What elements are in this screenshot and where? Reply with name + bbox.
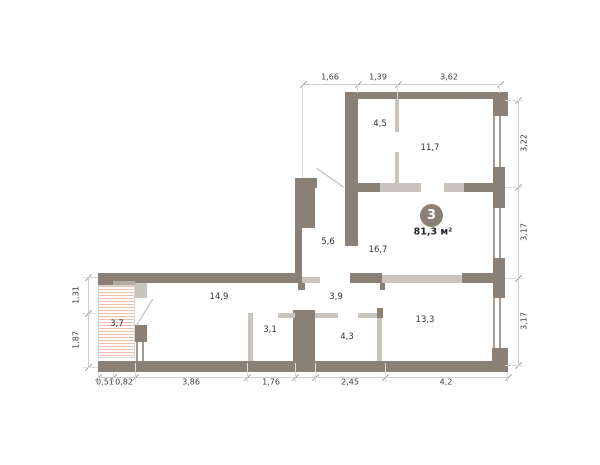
room-label-4-3: 4,3 <box>340 332 354 342</box>
wall-segment <box>293 310 315 361</box>
wall-segment <box>345 188 358 246</box>
extension-line <box>499 84 500 93</box>
door-swing-balcony <box>136 299 153 326</box>
window <box>493 298 501 348</box>
extension-line <box>295 363 296 382</box>
room-label-14-9: 14,9 <box>210 292 229 302</box>
wall-segment <box>295 188 315 228</box>
wall-segment <box>377 308 383 318</box>
partition-segment <box>358 313 377 318</box>
wall-segment <box>345 92 358 188</box>
dim-label-right-3: 3,17 <box>520 312 529 330</box>
extension-line <box>83 367 98 368</box>
extension-line <box>385 363 386 382</box>
wall-segment <box>133 325 147 342</box>
room-label-5-6: 5,6 <box>321 237 335 247</box>
partition-segment <box>248 313 253 361</box>
partition-segment <box>380 183 421 192</box>
room-label-16-7: 16,7 <box>369 245 388 255</box>
dim-label-bottom-4: 1,76 <box>262 378 280 387</box>
wall-segment <box>493 167 505 208</box>
window <box>493 116 501 167</box>
extension-line <box>507 372 508 382</box>
dim-label-bottom-2: 0,82 <box>115 378 133 387</box>
extension-line <box>83 313 96 314</box>
room-label-11-7: 11,7 <box>421 143 440 153</box>
wall-segment <box>350 273 382 283</box>
dim-label-top-1: 1,66 <box>321 73 339 82</box>
extension-line <box>247 363 248 382</box>
extension-line <box>315 363 316 382</box>
extension-line <box>135 363 136 382</box>
partition-segment <box>377 318 382 361</box>
floor-plan: 3 81,3 м² 4,5 11,7 5,6 16,7 14,9 3,7 3,1… <box>0 0 600 465</box>
extension-line <box>505 100 523 101</box>
window <box>136 342 144 361</box>
dim-label-left-1: 1,31 <box>72 286 81 304</box>
extension-line <box>113 372 114 382</box>
extension-line <box>505 278 523 279</box>
wall-segment <box>348 92 503 99</box>
partition-segment <box>278 313 295 318</box>
room-label-3-9: 3,9 <box>329 292 343 302</box>
room-label-13-3: 13,3 <box>416 315 435 325</box>
wall-segment <box>98 361 508 372</box>
partition-segment <box>395 99 399 132</box>
dim-line-top <box>303 84 500 85</box>
partition-segment <box>395 152 399 183</box>
partition-segment <box>444 183 464 192</box>
apartment-number-badge: 3 <box>420 204 443 227</box>
wall-segment <box>493 258 505 298</box>
apartment-area-label: 81,3 м² <box>414 227 453 238</box>
wall-segment <box>357 183 380 192</box>
dim-label-bottom-6: 4,2 <box>440 378 453 387</box>
extension-line <box>302 84 303 178</box>
extension-line <box>397 84 398 100</box>
extension-line <box>505 365 523 366</box>
room-label-3-1: 3,1 <box>263 325 277 335</box>
dim-label-right-1: 3,22 <box>520 134 529 152</box>
wall-segment <box>295 228 302 273</box>
room-label-3-7: 3,7 <box>110 319 124 329</box>
dim-label-right-2: 3,17 <box>520 223 529 241</box>
wall-segment <box>462 273 493 283</box>
dim-label-bottom-3: 3,86 <box>182 378 200 387</box>
dim-label-top-3: 3,62 <box>440 73 458 82</box>
partition-segment <box>133 283 147 298</box>
wall-segment <box>295 178 317 188</box>
partition-segment <box>382 275 462 283</box>
partition-segment <box>315 313 338 318</box>
extension-line <box>505 187 523 188</box>
wall-segment <box>380 283 385 290</box>
partition-segment <box>302 277 320 283</box>
extension-line <box>98 372 99 382</box>
dim-label-bottom-5: 2,45 <box>341 378 359 387</box>
dim-label-left-2: 1,87 <box>72 331 81 349</box>
wall-segment <box>298 283 305 290</box>
door-swing-entrance <box>316 168 344 188</box>
dim-label-top-2: 1,39 <box>369 73 387 82</box>
dim-line-left <box>88 277 89 367</box>
wall-segment <box>493 92 508 116</box>
room-label-4-5: 4,5 <box>373 119 387 129</box>
window <box>493 208 501 258</box>
extension-line <box>83 277 98 278</box>
wall-segment <box>464 183 493 192</box>
extension-line <box>357 84 358 93</box>
